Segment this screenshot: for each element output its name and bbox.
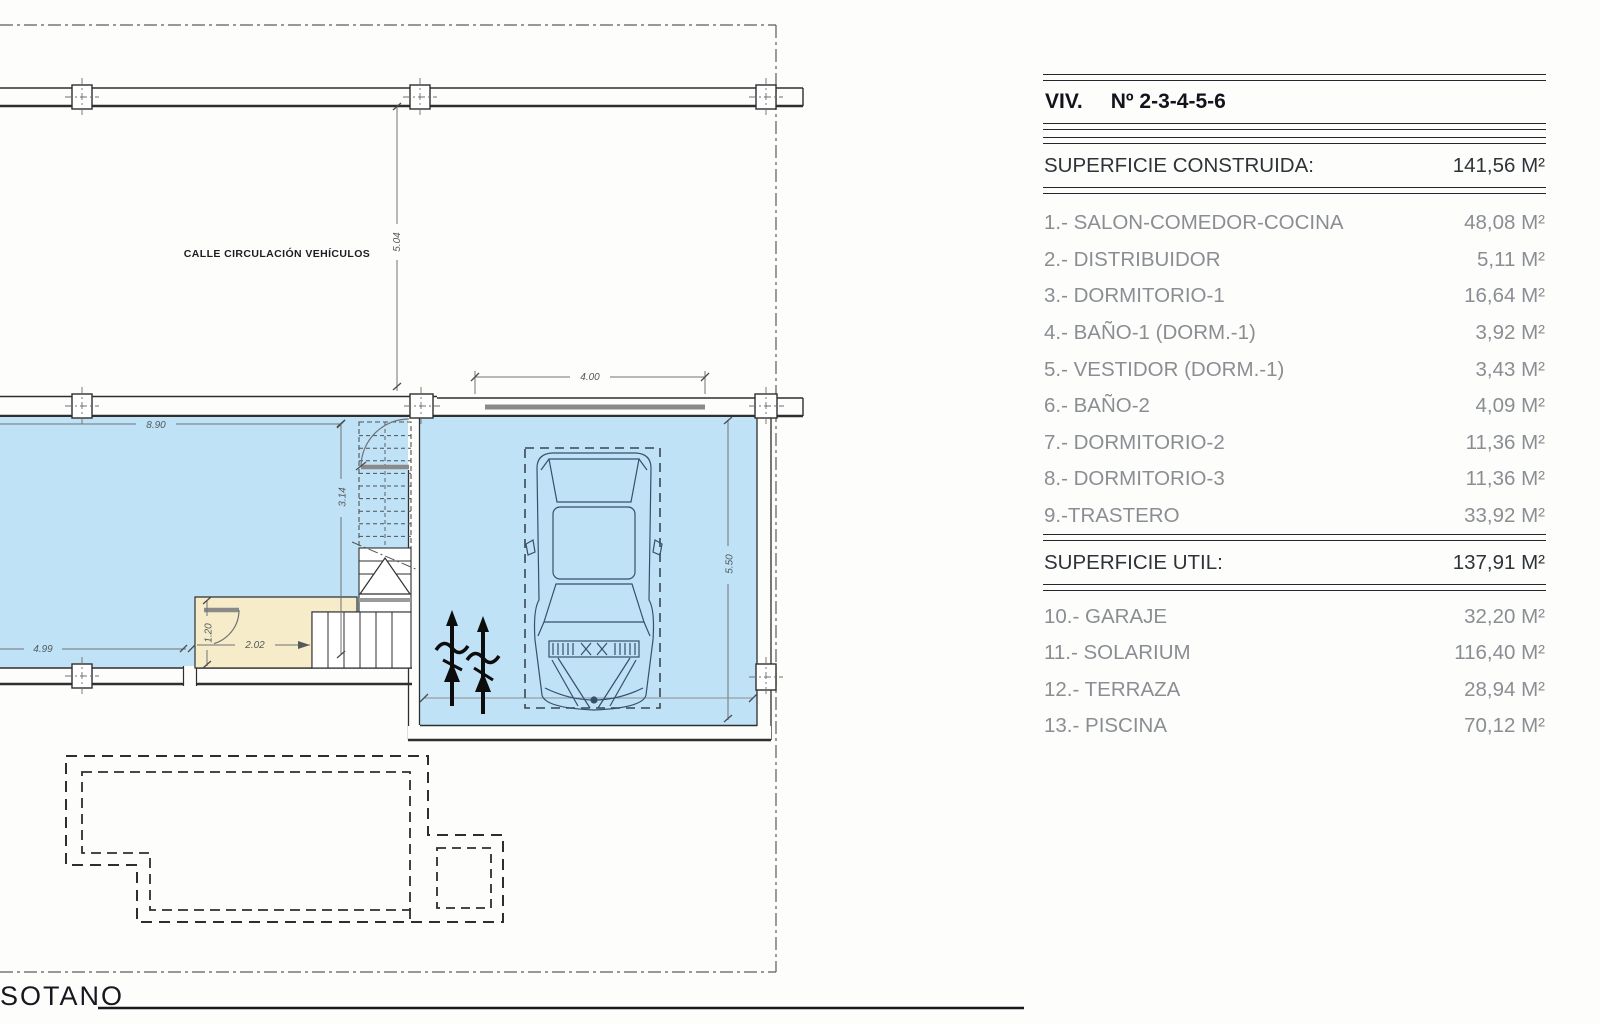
room-value: 3,43 M²: [1476, 358, 1546, 382]
svg-text:5.04: 5.04: [392, 232, 403, 252]
built-surface-label: SUPERFICIE CONSTRUIDA:: [1044, 154, 1314, 178]
svg-text:1.20: 1.20: [204, 623, 215, 643]
useful-surface-row: SUPERFICIE UTIL: 137,91 M²: [1043, 541, 1546, 584]
stairs-lower-flight: [312, 612, 411, 668]
rule: [1043, 137, 1546, 144]
room-value: 48,08 M²: [1464, 211, 1545, 235]
table-row: 5.- VESTIDOR (DORM.-1) 3,43 M²: [1043, 351, 1546, 388]
room-value: 28,94 M²: [1464, 678, 1545, 702]
area-table: VIV. Nº 2-3-4-5-6 SUPERFICIE CONSTRUIDA:…: [1043, 74, 1546, 745]
table-row: 10.- GARAJE 32,20 M²: [1043, 598, 1546, 635]
table-title: VIV. Nº 2-3-4-5-6: [1043, 81, 1546, 123]
svg-text:5.50: 5.50: [725, 554, 736, 574]
floorplan-page: CALLE CIRCULACIÓN VEHÍCULOS 5.04: [0, 0, 1600, 1024]
floorplan-drawing: CALLE CIRCULACIÓN VEHÍCULOS 5.04: [0, 0, 1024, 1024]
room-value: 33,92 M²: [1464, 504, 1545, 528]
table-title-number: Nº 2-3-4-5-6: [1111, 90, 1226, 114]
table-row: 9.-TRASTERO 33,92 M²: [1043, 498, 1546, 535]
svg-text:4.00: 4.00: [580, 372, 600, 383]
table-row: 3.- DORMITORIO-1 16,64 M²: [1043, 278, 1546, 315]
column-marker: [403, 78, 437, 116]
room-value: 11,36 M²: [1466, 467, 1545, 491]
room-label: 6.- BAÑO-2: [1044, 394, 1150, 418]
room-label: 2.- DISTRIBUIDOR: [1044, 248, 1221, 272]
room-value: 5,11 M²: [1477, 248, 1545, 272]
rule: [1043, 584, 1546, 591]
room-value: 32,20 M²: [1464, 605, 1545, 629]
room-value: 16,64 M²: [1464, 284, 1545, 308]
room-value: 70,12 M²: [1464, 714, 1545, 738]
useful-surface-label: SUPERFICIE UTIL:: [1044, 551, 1223, 575]
stairs-mid-flight: [352, 542, 418, 612]
room-value: 3,92 M²: [1476, 321, 1546, 345]
table-row: 1.- SALON-COMEDOR-COCINA 48,08 M²: [1043, 205, 1546, 242]
room-label: 10.- GARAJE: [1044, 605, 1167, 629]
dim-garage-width: 4.00: [471, 370, 709, 394]
room-label: 7.- DORMITORIO-2: [1044, 431, 1225, 455]
rule: [1043, 123, 1546, 130]
room-label: 3.- DORMITORIO-1: [1044, 284, 1225, 308]
garage-floor: [420, 417, 757, 725]
svg-text:8.90: 8.90: [146, 420, 166, 431]
room-value: 4,09 M²: [1476, 394, 1546, 418]
room-label: 11.- SOLARIUM: [1044, 641, 1191, 665]
room-label: 1.- SALON-COMEDOR-COCINA: [1044, 211, 1344, 235]
table-row: 7.- DORMITORIO-2 11,36 M²: [1043, 425, 1546, 462]
room-value: 11,36 M²: [1466, 431, 1545, 455]
room-label: 13.- PISCINA: [1044, 714, 1167, 738]
street-wall: [0, 88, 803, 106]
column-marker: [65, 78, 99, 116]
level-label-group: SOTANO: [0, 981, 1024, 1011]
svg-text:4.99: 4.99: [33, 644, 53, 655]
built-surface-row: SUPERFICIE CONSTRUIDA: 141,56 M²: [1043, 144, 1546, 187]
street-label: CALLE CIRCULACIÓN VEHÍCULOS: [184, 247, 370, 260]
room-label: 12.- TERRAZA: [1044, 678, 1180, 702]
room-label: 5.- VESTIDOR (DORM.-1): [1044, 358, 1284, 382]
table-row: 11.- SOLARIUM 116,40 M²: [1043, 635, 1546, 672]
room-label: 4.- BAÑO-1 (DORM.-1): [1044, 321, 1256, 345]
level-label: SOTANO: [0, 981, 124, 1011]
garage-bottom-wall: [408, 726, 771, 741]
room-value: 116,40 M²: [1454, 641, 1545, 665]
table-row: 2.- DISTRIBUIDOR 5,11 M²: [1043, 242, 1546, 279]
dim-street-depth: 5.04: [390, 103, 403, 391]
rule: [1043, 187, 1546, 194]
table-row: 12.- TERRAZA 28,94 M²: [1043, 672, 1546, 709]
room-label: 8.- DORMITORIO-3: [1044, 467, 1225, 491]
room-list: 1.- SALON-COMEDOR-COCINA 48,08 M² 2.- DI…: [1043, 194, 1546, 534]
table-title-viv: VIV.: [1045, 90, 1083, 114]
built-surface-value: 141,56 M²: [1453, 154, 1545, 178]
table-row: 6.- BAÑO-2 4,09 M²: [1043, 388, 1546, 425]
useful-surface-value: 137,91 M²: [1453, 551, 1545, 575]
table-row: 13.- PISCINA 70,12 M²: [1043, 708, 1546, 745]
table-row: 8.- DORMITORIO-3 11,36 M²: [1043, 461, 1546, 498]
svg-text:2.02: 2.02: [244, 640, 265, 651]
rule: [1043, 534, 1546, 541]
room-label: 9.-TRASTERO: [1044, 504, 1180, 528]
column-marker: [749, 78, 783, 116]
building-bottom-wall: [0, 666, 412, 686]
extras-list: 10.- GARAJE 32,20 M² 11.- SOLARIUM 116,4…: [1043, 591, 1546, 744]
garage-right-wall: [757, 417, 771, 740]
table-row: 4.- BAÑO-1 (DORM.-1) 3,92 M²: [1043, 315, 1546, 352]
svg-text:3.14: 3.14: [338, 487, 349, 507]
pool-outline: [66, 756, 503, 922]
rule-top: [1043, 74, 1546, 81]
